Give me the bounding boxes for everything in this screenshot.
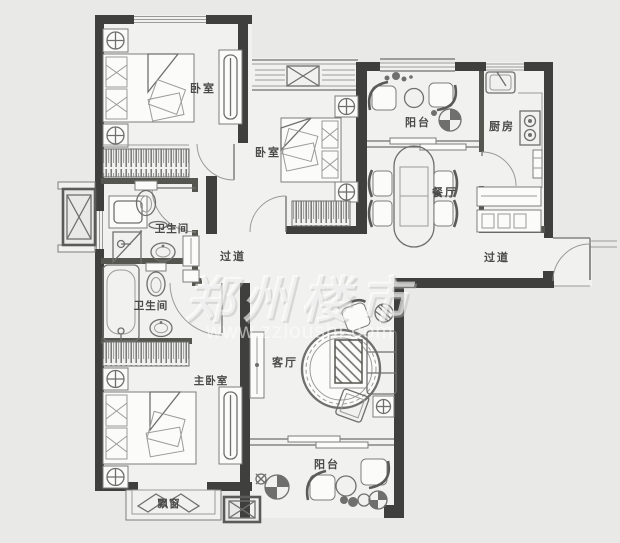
label-living-room: 客厅 — [271, 355, 298, 369]
floor-plan-canvas: 卧室 卧室 阳台 厨房 餐厅 过道 过道 卫生间 卫生间 主卧室 客厅 阳台 飘… — [0, 0, 620, 543]
label-hallway-center: 过道 — [220, 249, 246, 263]
label-bay-window: 飘窗 — [158, 497, 181, 510]
label-balcony-top: 阳台 — [405, 115, 431, 129]
label-balcony-bottom: 阳台 — [314, 457, 340, 471]
corridor-cabinets — [477, 187, 541, 232]
label-bathroom-2: 卫生间 — [134, 299, 169, 312]
watermark-url: www.zzloushi.com — [205, 320, 394, 343]
nightstand-lamp-icon — [335, 182, 358, 202]
label-bathroom-1: 卫生间 — [155, 222, 190, 235]
wardrobe-icon — [219, 387, 242, 464]
nightstand-lamp-icon — [335, 96, 358, 117]
label-master-bedroom: 主卧室 — [194, 374, 229, 387]
dresser-icon — [103, 342, 189, 366]
window-kitchen-top — [486, 62, 524, 71]
wardrobe-icon — [219, 50, 242, 124]
closet-icon — [103, 145, 189, 177]
label-dining: 餐厅 — [431, 185, 458, 199]
nightstand-lamp-icon — [103, 368, 128, 390]
kitchen-cabinet-icon — [533, 150, 542, 178]
bed-icon — [103, 392, 196, 464]
window-bathroom-1-left — [95, 211, 104, 249]
chair-icon — [361, 459, 389, 488]
label-hallway-right: 过道 — [484, 250, 510, 264]
bed-icon — [103, 54, 194, 122]
shelf-icon — [292, 201, 350, 226]
nightstand-lamp-icon — [103, 29, 128, 52]
nightstand-lamp-icon — [103, 124, 128, 147]
bed-icon — [281, 118, 341, 182]
watermark: 郑州楼市 郑州楼市 www.zzloushi.com — [184, 272, 418, 343]
label-bedroom-2: 卧室 — [255, 145, 281, 159]
label-bedroom-1: 卧室 — [190, 81, 216, 95]
nightstand-lamp-icon — [103, 466, 128, 488]
ac-platform-bottom — [224, 497, 260, 522]
ac-platform-left — [58, 182, 95, 252]
window-bedroom-1-top — [134, 15, 206, 24]
bay-window-bedroom-2 — [252, 58, 358, 90]
floor-plan-drawing: 卧室 卧室 阳台 厨房 餐厅 过道 过道 卫生间 卫生间 主卧室 客厅 阳台 飘… — [0, 0, 620, 543]
floor-lamp-icon — [373, 396, 394, 417]
label-kitchen: 厨房 — [489, 119, 515, 133]
